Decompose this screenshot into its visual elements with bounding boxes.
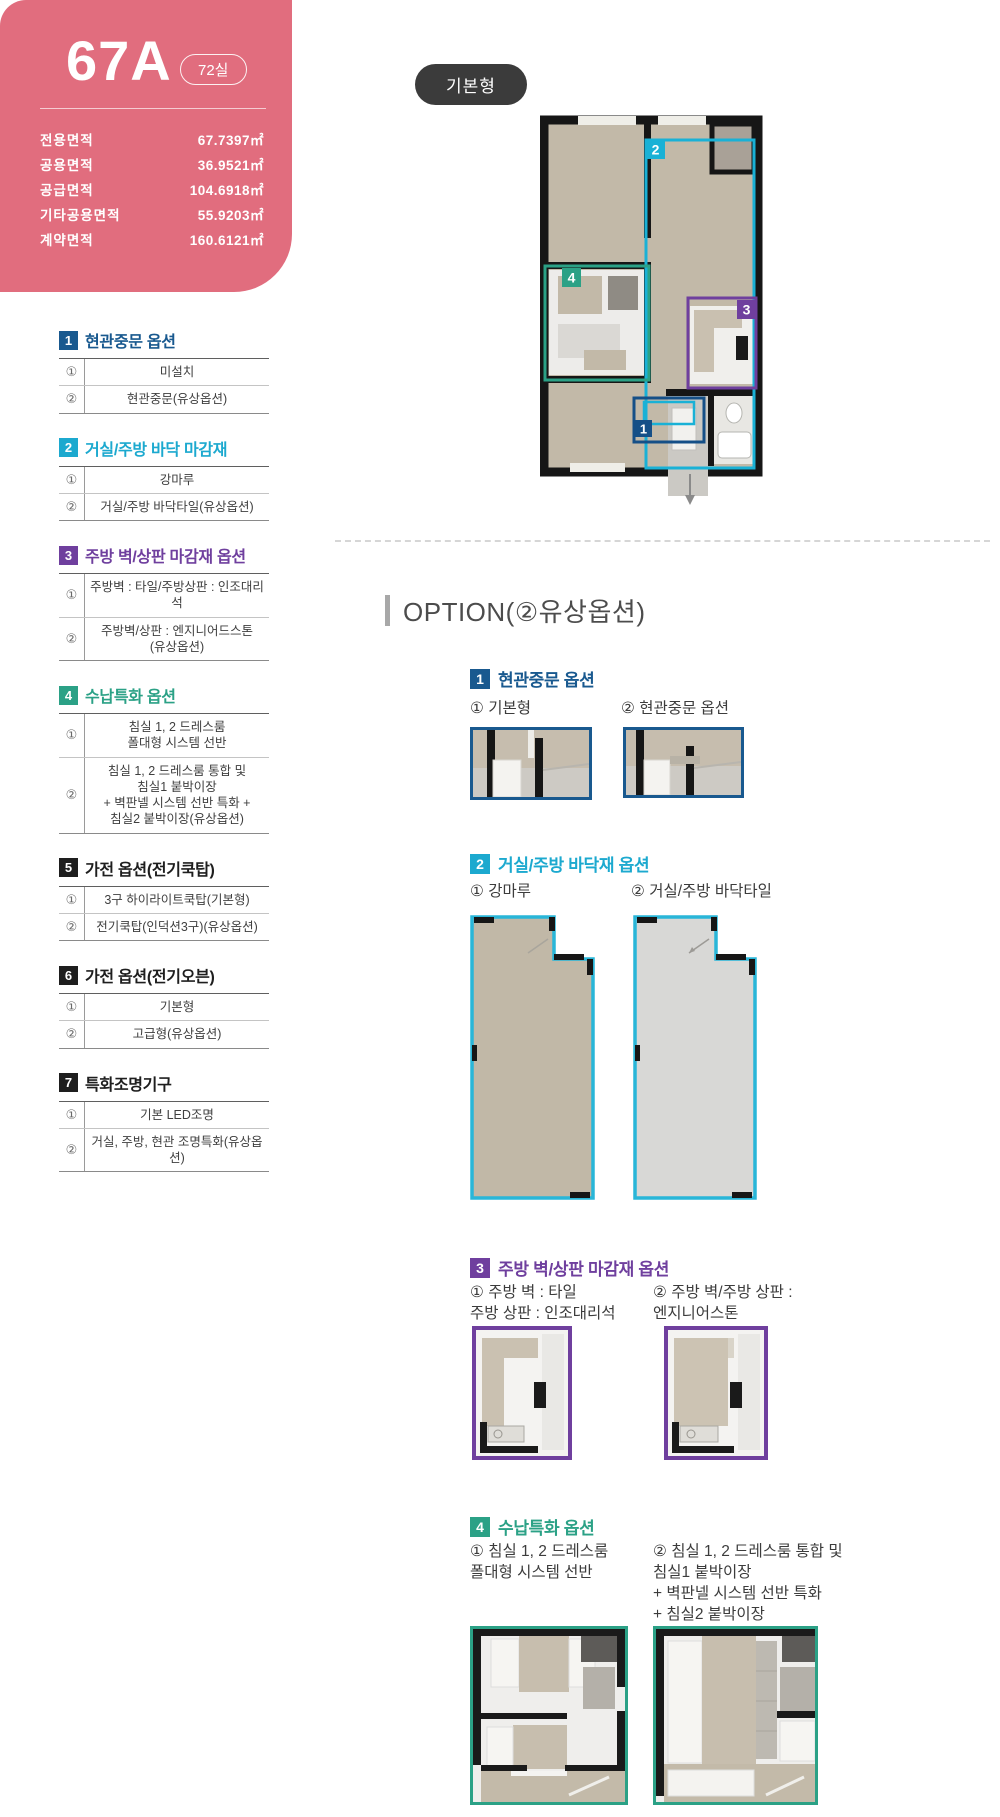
option-table-3: 3 주방 벽/상판 마감재 옵션 ① 주방벽 : 타일/주방상판 : 인조대리석… (59, 543, 269, 661)
table-row: ① 침실 1, 2 드레스룸 폴대형 시스템 선반 (59, 714, 269, 757)
section-title: 거실/주방 바닥재 옵션 (498, 851, 649, 876)
area-value: 67.7397㎡ (134, 129, 264, 149)
table-row: ① 강마루 (59, 467, 269, 493)
table-rows: ① 강마루 ② 거실/주방 바닥타일(유상옵션) (59, 466, 269, 522)
row-value: 3구 하이라이트쿡탑(기본형) (85, 887, 269, 913)
table-row: ② 전기쿡탑(인덕션3구)(유상옵션) (59, 913, 269, 940)
option-table-7: 7 특화조명기구 ① 기본 LED조명 ② 거실, 주방, 현관 조명특화(유상… (59, 1071, 269, 1173)
row-value: 거실/주방 바닥타일(유상옵션) (85, 494, 269, 520)
section-2-item-2-image (633, 915, 757, 1200)
card-divider (40, 108, 266, 109)
section-4-item-2-image (653, 1626, 818, 1805)
window-bottom (570, 463, 625, 472)
brochure-page: 67A 72실 전용면적 67.7397㎡ 공용면적 36.9521㎡ 공급면적… (0, 0, 1000, 1817)
area-row: 기타공용면적 55.9203㎡ (40, 201, 264, 226)
table-row: ② 주방벽/상판 : 엔지니어드스톤 (유상옵션) (59, 617, 269, 661)
row-number: ② (59, 494, 85, 520)
area-rows: 전용면적 67.7397㎡ 공용면적 36.9521㎡ 공급면적 104.691… (40, 126, 264, 251)
table-header: 2 거실/주방 바닥 마감재 (59, 436, 269, 460)
area-row: 계약면적 160.6121㎡ (40, 226, 264, 251)
section-1-item-2-image (623, 727, 744, 798)
row-value: 기본형 (85, 994, 269, 1020)
row-value: 거실, 주방, 현관 조명특화(유상옵션) (85, 1129, 269, 1172)
row-value: 미설치 (85, 359, 269, 385)
section-3-item-1-image (472, 1326, 572, 1460)
table-header: 1 현관중문 옵션 (59, 328, 269, 352)
table-number-badge: 1 (59, 331, 78, 350)
balcony (712, 124, 754, 172)
section-3-item-2-image (664, 1326, 768, 1460)
row-value: 강마루 (85, 467, 269, 493)
table-header: 7 특화조명기구 (59, 1071, 269, 1095)
floor-plan: 2 4 3 1 (540, 112, 765, 506)
table-header: 5 가전 옵션(전기쿡탑) (59, 856, 269, 880)
table-row: ① 미설치 (59, 359, 269, 385)
unit-info-card: 67A 72실 전용면적 67.7397㎡ 공용면적 36.9521㎡ 공급면적… (0, 0, 292, 292)
plan-marker-2: 2 (652, 142, 660, 158)
plan-marker-4: 4 (568, 270, 576, 286)
row-number: ② (59, 914, 85, 940)
table-number-badge: 3 (59, 546, 78, 565)
table-rows: ① 기본 LED조명 ② 거실, 주방, 현관 조명특화(유상옵션) (59, 1101, 269, 1173)
area-label: 공용면적 (40, 154, 134, 174)
section-number-badge: 2 (470, 854, 490, 874)
window-top2 (658, 116, 706, 125)
section-number-badge: 4 (470, 1517, 490, 1537)
row-value: 고급형(유상옵션) (85, 1021, 269, 1047)
row-value: 전기쿡탑(인덕션3구)(유상옵션) (85, 914, 269, 940)
unit-type-title: 67A (66, 28, 172, 93)
unit-count-badge: 72실 (180, 54, 247, 85)
section-4-item-1-image (470, 1626, 628, 1805)
kitchen-appliance (736, 336, 748, 360)
table-title: 현관중문 옵션 (85, 328, 176, 352)
area-row: 공용면적 36.9521㎡ (40, 151, 264, 176)
table-title: 가전 옵션(전기오븐) (85, 963, 215, 987)
section-title: 현관중문 옵션 (498, 666, 594, 691)
row-number: ② (59, 618, 85, 661)
section-title: 주방 벽/상판 마감재 옵션 (498, 1255, 669, 1280)
heading-text: OPTION(②유상옵션) (403, 592, 645, 629)
table-rows: ① 침실 1, 2 드레스룸 폴대형 시스템 선반 ② 침실 1, 2 드레스룸… (59, 713, 269, 834)
section-1-item-1-image (470, 727, 592, 800)
section-title: 수납특화 옵션 (498, 1514, 594, 1539)
table-title: 가전 옵션(전기쿡탑) (85, 856, 215, 880)
row-value: 현관중문(유상옵션) (85, 386, 269, 412)
section-number-badge: 3 (470, 1258, 490, 1278)
section-2-item-1-image (470, 915, 595, 1200)
section-1-item-1-label: ① 기본형 (470, 699, 531, 720)
section-2-heading: 2 거실/주방 바닥재 옵션 (470, 851, 649, 876)
row-number: ② (59, 1021, 85, 1047)
row-number: ① (59, 887, 85, 913)
section-4-item-1-label: ① 침실 1, 2 드레스룸 폴대형 시스템 선반 (470, 1542, 608, 1584)
area-value: 36.9521㎡ (134, 154, 264, 174)
inner-wall (708, 396, 714, 466)
section-3-item-1-label: ① 주방 벽 : 타일 주방 상판 : 인조대리석 (470, 1283, 616, 1325)
table-row: ① 기본 LED조명 (59, 1102, 269, 1128)
row-number: ① (59, 1102, 85, 1128)
area-value: 55.9203㎡ (134, 204, 264, 224)
row-number: ① (59, 574, 85, 617)
row-value: 주방벽/상판 : 엔지니어드스톤 (유상옵션) (85, 618, 269, 661)
kitchen-counter2 (694, 310, 714, 372)
table-number-badge: 4 (59, 686, 78, 705)
row-number: ② (59, 1129, 85, 1172)
table-row: ① 주방벽 : 타일/주방상판 : 인조대리석 (59, 574, 269, 617)
area-value: 160.6121㎡ (134, 229, 264, 249)
table-row: ② 거실/주방 바닥타일(유상옵션) (59, 493, 269, 520)
section-2-item-1-label: ① 강마루 (470, 882, 531, 903)
option-table-1: 1 현관중문 옵션 ① 미설치 ② 현관중문(유상옵션) (59, 328, 269, 414)
table-header: 4 수납특화 옵션 (59, 683, 269, 707)
table-rows: ① 3구 하이라이트쿡탑(기본형) ② 전기쿡탑(인덕션3구)(유상옵션) (59, 886, 269, 942)
row-value: 기본 LED조명 (85, 1102, 269, 1128)
row-number: ① (59, 467, 85, 493)
table-rows: ① 기본형 ② 고급형(유상옵션) (59, 993, 269, 1049)
section-3-item-2-label: ② 주방 벽/주방 상판 : 엔지니어스톤 (653, 1283, 793, 1325)
table-row: ② 현관중문(유상옵션) (59, 385, 269, 412)
row-number: ② (59, 386, 85, 412)
table-header: 3 주방 벽/상판 마감재 옵션 (59, 543, 269, 567)
option-table-4: 4 수납특화 옵션 ① 침실 1, 2 드레스룸 폴대형 시스템 선반 ② 침실… (59, 683, 269, 834)
table-row: ① 기본형 (59, 994, 269, 1020)
table-row: ② 거실, 주방, 현관 조명특화(유상옵션) (59, 1128, 269, 1172)
row-value: 침실 1, 2 드레스룸 폴대형 시스템 선반 (85, 714, 269, 757)
area-label: 공급면적 (40, 179, 134, 199)
section-1-heading: 1 현관중문 옵션 (470, 666, 594, 691)
table-row: ① 3구 하이라이트쿡탑(기본형) (59, 887, 269, 913)
table-title: 특화조명기구 (85, 1071, 172, 1095)
table-row: ② 고급형(유상옵션) (59, 1020, 269, 1047)
area-label: 계약면적 (40, 229, 134, 249)
area-value: 104.6918㎡ (134, 179, 264, 199)
table-rows: ① 미설치 ② 현관중문(유상옵션) (59, 358, 269, 414)
section-4-heading: 4 수납특화 옵션 (470, 1514, 594, 1539)
section-3-heading: 3 주방 벽/상판 마감재 옵션 (470, 1255, 669, 1280)
heading-accent-bar (385, 595, 390, 626)
area-row: 전용면적 67.7397㎡ (40, 126, 264, 151)
table-number-badge: 5 (59, 858, 78, 877)
table-number-badge: 2 (59, 438, 78, 457)
shoe-cabinet (672, 408, 696, 450)
option-tables-column: 1 현관중문 옵션 ① 미설치 ② 현관중문(유상옵션) 2 거실/주방 바닥 … (59, 328, 269, 1194)
plan-type-pill: 기본형 (415, 64, 527, 105)
section-number-badge: 1 (470, 669, 490, 689)
row-value: 주방벽 : 타일/주방상판 : 인조대리석 (85, 574, 269, 617)
area-label: 기타공용면적 (40, 204, 134, 224)
table-number-badge: 7 (59, 1073, 78, 1092)
row-number: ② (59, 758, 85, 833)
row-number: ① (59, 714, 85, 757)
table-rows: ① 주방벽 : 타일/주방상판 : 인조대리석 ② 주방벽/상판 : 엔지니어드… (59, 573, 269, 661)
area-label: 전용면적 (40, 129, 134, 149)
table-row: ② 침실 1, 2 드레스룸 통합 및 침실1 붙박이장 + 벽판넬 시스템 선… (59, 757, 269, 833)
option-table-2: 2 거실/주방 바닥 마감재 ① 강마루 ② 거실/주방 바닥타일(유상옵션) (59, 436, 269, 522)
toilet (726, 403, 742, 423)
dashed-divider (335, 540, 990, 542)
table-title: 주방 벽/상판 마감재 옵션 (85, 543, 246, 567)
plan-marker-1: 1 (640, 422, 647, 437)
area-row: 공급면적 104.6918㎡ (40, 176, 264, 201)
table-title: 수납특화 옵션 (85, 683, 176, 707)
option-section-heading: OPTION(②유상옵션) (385, 592, 645, 629)
section-2-item-2-label: ② 거실/주방 바닥타일 (631, 882, 772, 903)
window-top (578, 116, 636, 125)
table-header: 6 가전 옵션(전기오븐) (59, 963, 269, 987)
section-1-item-2-label: ② 현관중문 옵션 (621, 699, 729, 720)
row-value: 침실 1, 2 드레스룸 통합 및 침실1 붙박이장 + 벽판넬 시스템 선반 … (85, 758, 269, 833)
bathtub (718, 432, 751, 458)
entrance-arrow-head (685, 495, 695, 505)
table-number-badge: 6 (59, 966, 78, 985)
table-title: 거실/주방 바닥 마감재 (85, 436, 227, 460)
dressroom-shelf3 (584, 350, 626, 370)
dressroom-closet (608, 276, 638, 310)
section-4-item-2-label: ② 침실 1, 2 드레스룸 통합 및 침실1 붙박이장 + 벽판넬 시스템 선… (653, 1542, 843, 1626)
option-table-5: 5 가전 옵션(전기쿡탑) ① 3구 하이라이트쿡탑(기본형) ② 전기쿡탑(인… (59, 856, 269, 942)
plan-marker-3: 3 (743, 302, 751, 318)
inner-wall (666, 389, 758, 396)
row-number: ① (59, 359, 85, 385)
row-number: ① (59, 994, 85, 1020)
option-table-6: 6 가전 옵션(전기오븐) ① 기본형 ② 고급형(유상옵션) (59, 963, 269, 1049)
